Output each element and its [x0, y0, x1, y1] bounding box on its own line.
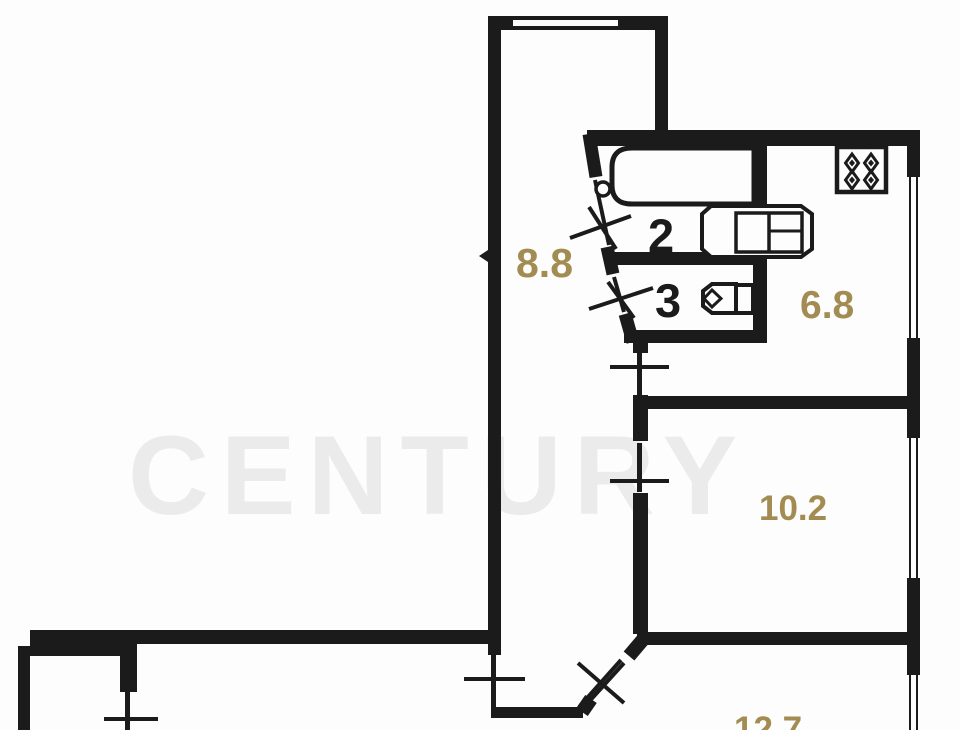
- wall-slant: [589, 134, 596, 177]
- label-wc-number: 3: [655, 277, 681, 324]
- wall-slant: [607, 247, 613, 274]
- toilet-icon: [736, 285, 753, 313]
- wall-diagonal: [629, 636, 646, 656]
- label-room-a-area: 10.2: [759, 491, 827, 526]
- drain-circle-icon: [596, 182, 610, 196]
- bathtub-icon: [612, 148, 754, 204]
- stove-icon: [837, 147, 886, 192]
- label-corridor-area: 8.8: [516, 243, 573, 284]
- floor-plan: CENTURY: [0, 0, 960, 730]
- label-bathroom-number: 2: [648, 212, 674, 259]
- door-swing-icon: [580, 660, 621, 706]
- label-room-b-area: 12.7: [734, 712, 802, 730]
- label-kitchen-area: 6.8: [800, 286, 854, 325]
- fixtures-layer: [0, 0, 960, 730]
